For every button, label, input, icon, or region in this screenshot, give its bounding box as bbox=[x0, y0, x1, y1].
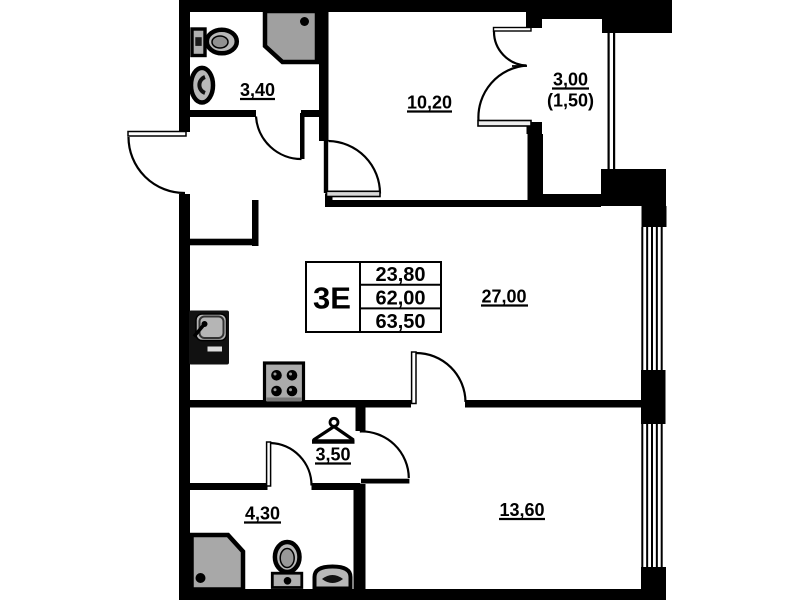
svg-text:62,00: 62,00 bbox=[375, 288, 425, 310]
svg-text:13,60: 13,60 bbox=[499, 500, 544, 520]
svg-text:3,40: 3,40 bbox=[240, 80, 275, 100]
svg-text:(1,50): (1,50) bbox=[547, 91, 594, 111]
svg-text:63,50: 63,50 bbox=[375, 311, 425, 333]
svg-text:10,20: 10,20 bbox=[407, 93, 452, 113]
svg-text:3,00: 3,00 bbox=[553, 70, 588, 90]
svg-text:3Е: 3Е bbox=[313, 281, 351, 316]
svg-text:27,00: 27,00 bbox=[481, 287, 526, 307]
svg-text:4,30: 4,30 bbox=[245, 504, 280, 524]
svg-text:3,50: 3,50 bbox=[315, 445, 350, 465]
svg-text:23,80: 23,80 bbox=[375, 264, 425, 286]
